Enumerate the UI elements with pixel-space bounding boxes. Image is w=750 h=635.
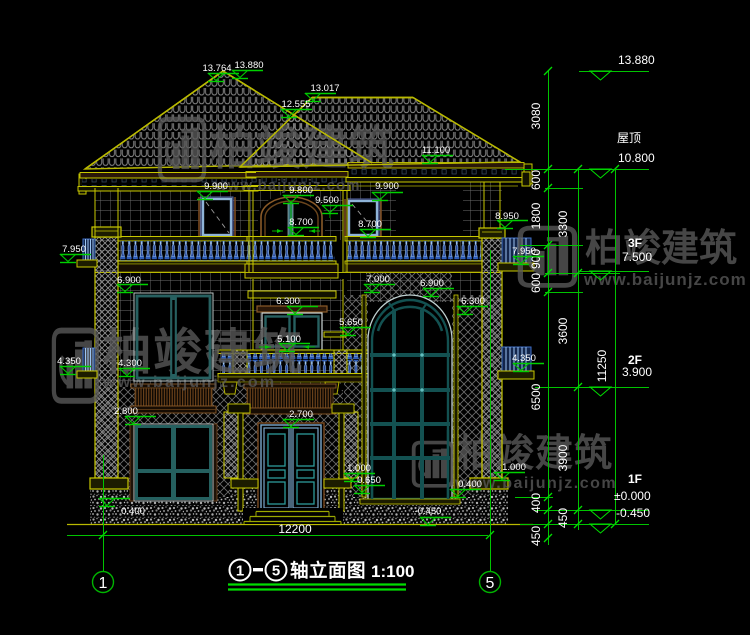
svg-text:www.baijunjz.com: www.baijunjz.com bbox=[583, 270, 747, 289]
svg-text:4.350: 4.350 bbox=[512, 353, 536, 364]
svg-text:-0.450: -0.450 bbox=[616, 506, 650, 520]
svg-text:13.017: 13.017 bbox=[310, 83, 339, 94]
svg-text:1.000: 1.000 bbox=[502, 462, 526, 473]
svg-text:6500: 6500 bbox=[529, 383, 543, 410]
svg-text:8.700: 8.700 bbox=[289, 217, 313, 228]
svg-text:5.650: 5.650 bbox=[339, 317, 363, 328]
svg-text:13.880: 13.880 bbox=[234, 60, 263, 71]
svg-text:3900: 3900 bbox=[556, 444, 570, 471]
svg-text:7.500: 7.500 bbox=[622, 250, 652, 264]
svg-text:3F: 3F bbox=[628, 236, 642, 250]
svg-text:1: 1 bbox=[236, 563, 244, 580]
svg-text:6.900: 6.900 bbox=[420, 278, 444, 289]
svg-text:3.900: 3.900 bbox=[622, 365, 652, 379]
svg-text:400: 400 bbox=[529, 493, 543, 513]
svg-text:1800: 1800 bbox=[529, 202, 543, 229]
svg-text:6.300: 6.300 bbox=[276, 296, 300, 307]
svg-text:柏竣建筑: 柏竣建筑 bbox=[103, 326, 303, 380]
svg-text:10.800: 10.800 bbox=[618, 151, 655, 165]
svg-text:600: 600 bbox=[529, 273, 543, 293]
svg-text:0.650: 0.650 bbox=[357, 475, 381, 486]
svg-text:3080: 3080 bbox=[529, 102, 543, 129]
svg-text:4.300: 4.300 bbox=[118, 358, 142, 369]
svg-text:9.800: 9.800 bbox=[289, 185, 313, 196]
svg-text:450: 450 bbox=[529, 526, 543, 546]
svg-text:1:100: 1:100 bbox=[371, 562, 414, 581]
svg-text:8.700: 8.700 bbox=[358, 219, 382, 230]
svg-text:2.800: 2.800 bbox=[114, 406, 138, 417]
svg-text:7.950: 7.950 bbox=[62, 244, 86, 255]
svg-text:1.000: 1.000 bbox=[347, 463, 371, 474]
svg-text:600: 600 bbox=[529, 170, 543, 190]
svg-text:柏竣建筑: 柏竣建筑 bbox=[457, 433, 613, 475]
svg-text:11.100: 11.100 bbox=[422, 145, 450, 156]
svg-text:屋顶: 屋顶 bbox=[617, 131, 641, 145]
svg-text:5: 5 bbox=[486, 575, 495, 592]
svg-text:4.350: 4.350 bbox=[57, 356, 81, 367]
svg-text:3300: 3300 bbox=[556, 210, 570, 237]
svg-text:13.880: 13.880 bbox=[618, 53, 655, 67]
svg-text:6.300: 6.300 bbox=[461, 296, 485, 307]
svg-text:9.500: 9.500 bbox=[315, 195, 339, 206]
svg-text:13.764: 13.764 bbox=[202, 63, 231, 74]
svg-text:7.000: 7.000 bbox=[366, 274, 390, 285]
svg-text:12200: 12200 bbox=[278, 522, 312, 536]
svg-text:1: 1 bbox=[99, 575, 108, 592]
svg-text:0.400: 0.400 bbox=[458, 479, 482, 490]
svg-text:12.555: 12.555 bbox=[281, 99, 310, 110]
svg-text:3600: 3600 bbox=[556, 317, 570, 344]
svg-text:450: 450 bbox=[556, 508, 570, 528]
svg-text:轴立面图: 轴立面图 bbox=[290, 560, 366, 581]
svg-text:-0.450: -0.450 bbox=[415, 506, 442, 517]
svg-text:±0.000: ±0.000 bbox=[614, 489, 651, 503]
svg-text:0.400: 0.400 bbox=[121, 506, 145, 517]
svg-text:9.900: 9.900 bbox=[375, 181, 399, 192]
svg-text:柏竣建筑: 柏竣建筑 bbox=[585, 228, 737, 270]
svg-text:11250: 11250 bbox=[595, 349, 609, 382]
svg-text:5: 5 bbox=[272, 563, 280, 580]
svg-text:9.900: 9.900 bbox=[204, 181, 228, 192]
svg-text:7.950: 7.950 bbox=[512, 246, 536, 257]
svg-text:1F: 1F bbox=[628, 472, 642, 486]
svg-text:2.700: 2.700 bbox=[289, 409, 313, 420]
